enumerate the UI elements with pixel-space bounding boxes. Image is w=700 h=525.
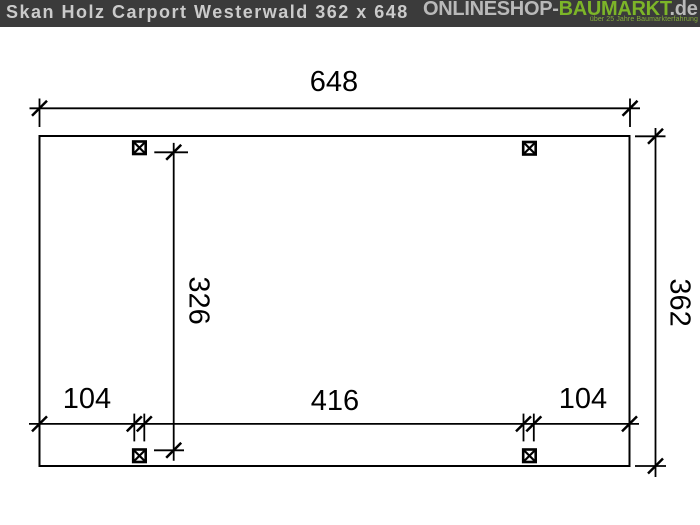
svg-text:104: 104 [559,383,607,415]
svg-text:416: 416 [311,385,359,417]
svg-text:362: 362 [664,278,696,326]
svg-text:648: 648 [310,66,358,98]
svg-text:104: 104 [63,383,111,415]
svg-text:326: 326 [183,276,215,324]
